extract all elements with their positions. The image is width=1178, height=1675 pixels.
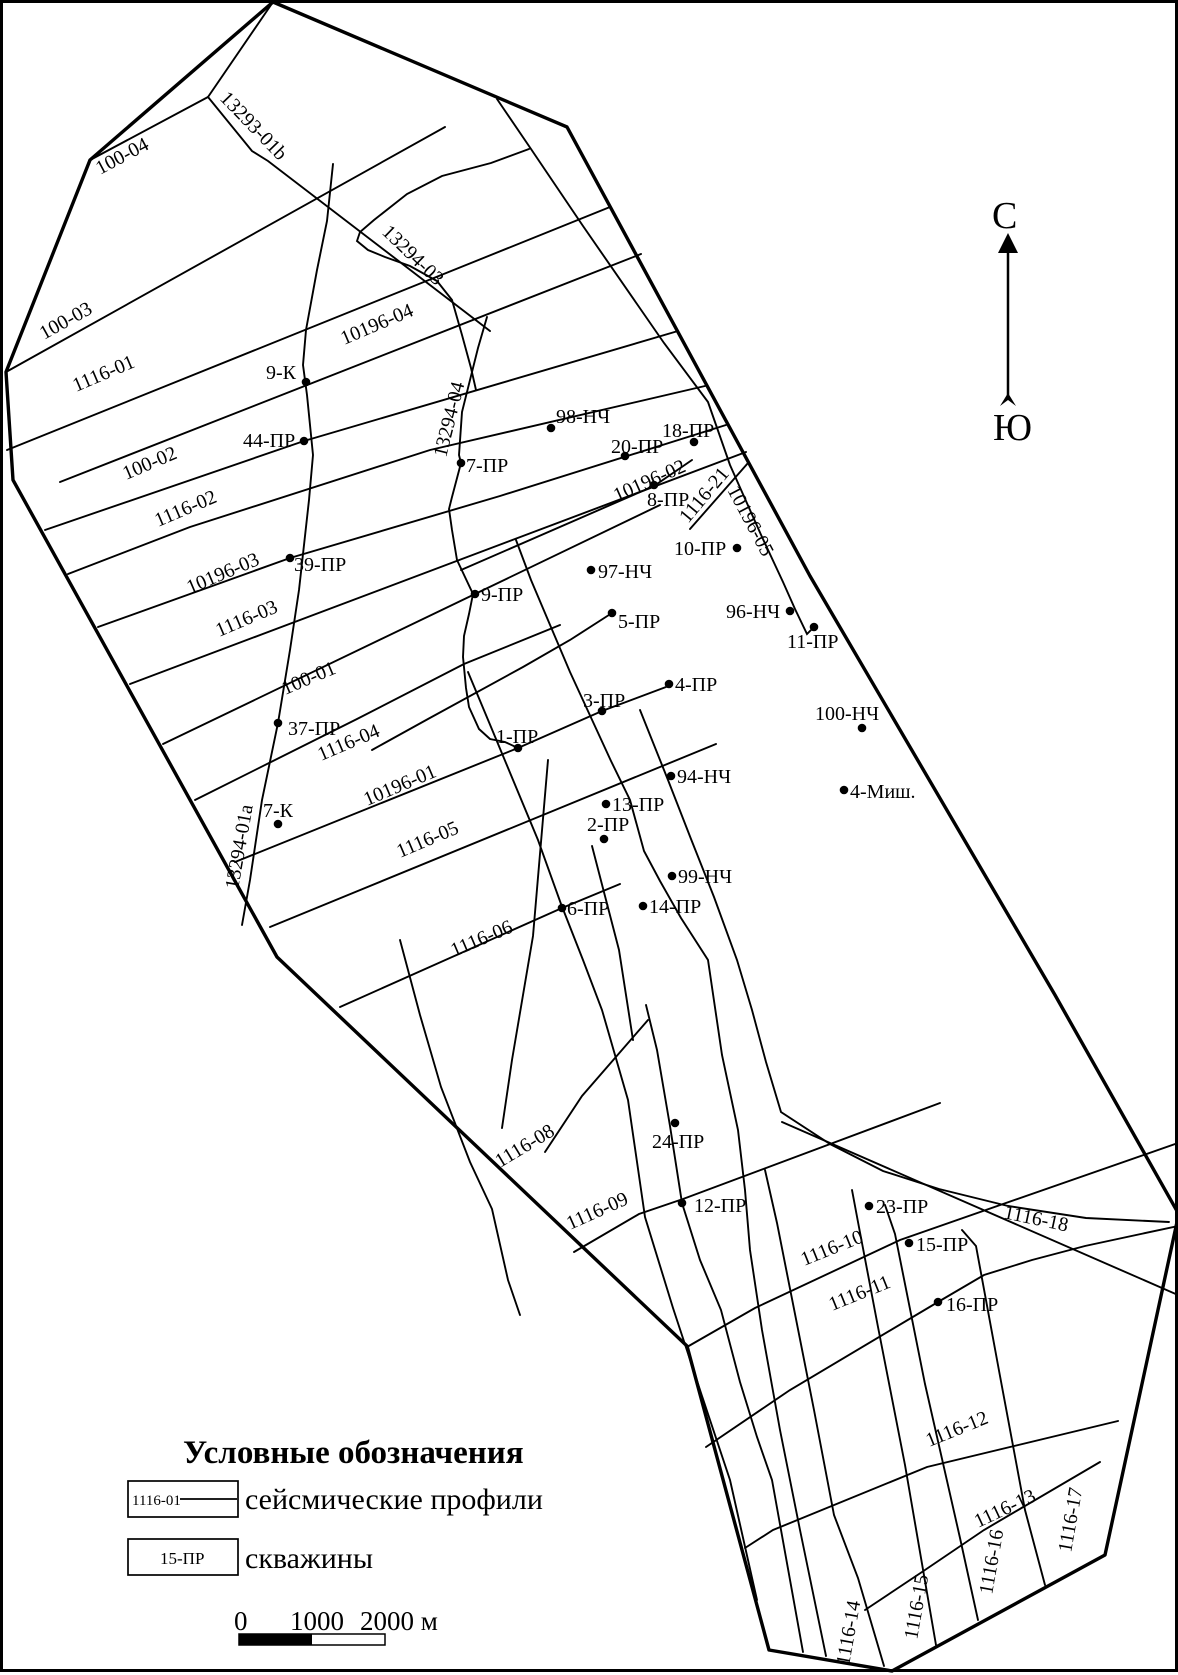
svg-text:9-ПР: 9-ПР [481, 584, 523, 606]
svg-text:24-ПР: 24-ПР [652, 1131, 704, 1153]
svg-text:сейсмические профили: сейсмические профили [245, 1483, 543, 1516]
svg-text:18-ПР: 18-ПР [662, 420, 714, 442]
svg-text:99-НЧ: 99-НЧ [678, 866, 732, 888]
svg-text:96-НЧ: 96-НЧ [726, 601, 780, 623]
svg-text:39-ПР: 39-ПР [294, 554, 346, 576]
svg-text:15-ПР: 15-ПР [160, 1549, 204, 1568]
svg-text:скважины: скважины [245, 1542, 373, 1575]
svg-text:1116-01: 1116-01 [132, 1493, 181, 1509]
svg-text:4-Миш.: 4-Миш. [850, 781, 916, 803]
svg-text:2-ПР: 2-ПР [587, 814, 629, 836]
svg-text:6-ПР: 6-ПР [567, 898, 609, 920]
svg-text:94-НЧ: 94-НЧ [677, 766, 731, 788]
svg-text:2000 м: 2000 м [360, 1606, 438, 1636]
svg-text:10-ПР: 10-ПР [674, 538, 726, 560]
svg-text:44-ПР: 44-ПР [243, 430, 295, 452]
svg-text:16-ПР: 16-ПР [946, 1294, 998, 1316]
svg-text:Условные обозначения: Условные обозначения [183, 1435, 524, 1471]
svg-text:97-НЧ: 97-НЧ [598, 561, 652, 583]
svg-text:8-ПР: 8-ПР [647, 489, 689, 511]
svg-text:Ю: Ю [993, 407, 1032, 449]
svg-text:7-ПР: 7-ПР [466, 455, 508, 477]
svg-text:20-ПР: 20-ПР [611, 436, 663, 458]
svg-text:1000: 1000 [290, 1606, 344, 1636]
svg-text:100-НЧ: 100-НЧ [815, 703, 879, 725]
svg-text:13-ПР: 13-ПР [612, 794, 664, 816]
svg-text:11-ПР: 11-ПР [787, 631, 838, 653]
svg-text:5-ПР: 5-ПР [618, 611, 660, 633]
svg-text:98-НЧ: 98-НЧ [556, 406, 610, 428]
svg-text:14-ПР: 14-ПР [649, 896, 701, 918]
svg-text:37-ПР: 37-ПР [288, 718, 340, 740]
svg-text:9-К: 9-К [266, 362, 297, 384]
svg-text:4-ПР: 4-ПР [675, 674, 717, 696]
svg-text:23-ПР: 23-ПР [876, 1196, 928, 1218]
svg-text:С: С [992, 195, 1017, 237]
svg-text:15-ПР: 15-ПР [916, 1234, 968, 1256]
svg-text:1-ПР: 1-ПР [496, 726, 538, 748]
svg-text:3-ПР: 3-ПР [583, 690, 625, 712]
svg-text:12-ПР: 12-ПР [694, 1195, 746, 1217]
svg-text:7-К: 7-К [263, 800, 294, 822]
svg-text:0: 0 [234, 1606, 248, 1636]
